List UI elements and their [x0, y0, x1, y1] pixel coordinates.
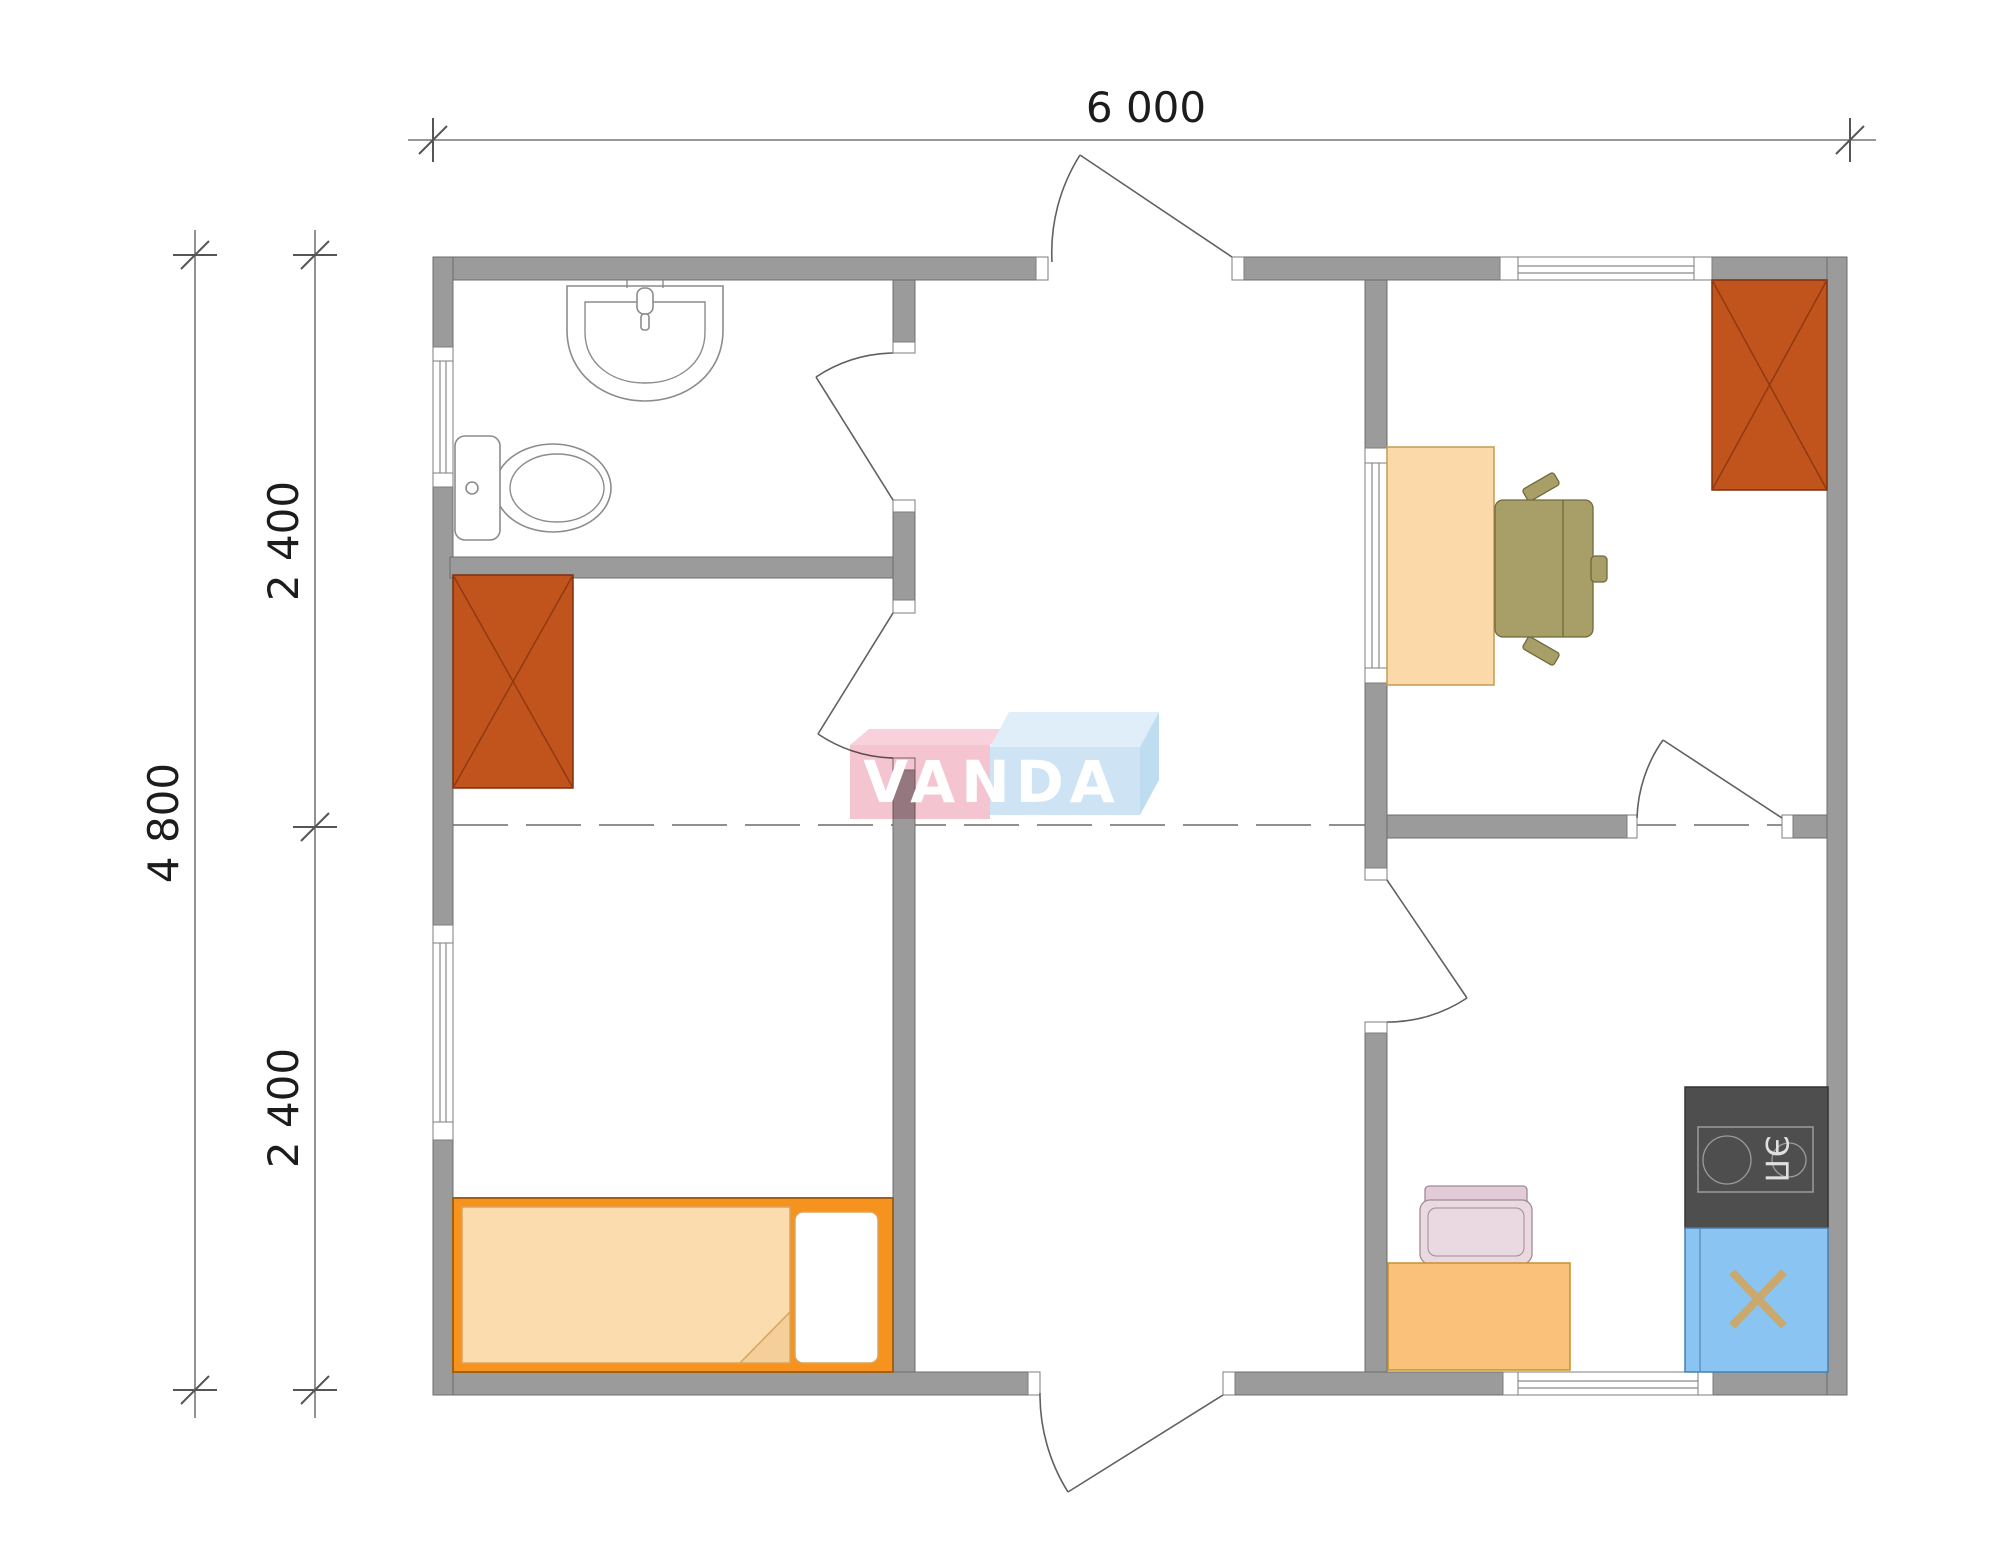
- wall-segment: [1365, 683, 1387, 868]
- wall-segment: [1827, 257, 1847, 1395]
- wardrobe-office: [1712, 280, 1827, 490]
- door-jamb: [1223, 1372, 1235, 1395]
- wall-segment: [433, 257, 453, 347]
- chair-armrest: [1522, 636, 1560, 666]
- dimension-label-lower-height: 2 400: [259, 1048, 308, 1168]
- door-jamb: [893, 500, 915, 512]
- wall-segment: [1387, 815, 1627, 838]
- faucet-spout: [641, 314, 649, 330]
- chair-seat: [1420, 1200, 1532, 1264]
- door-jamb: [1627, 815, 1637, 838]
- door-jamb: [1232, 257, 1244, 280]
- dimension-left-total: 4 800: [139, 230, 217, 1418]
- stove-body: [1685, 1087, 1828, 1228]
- kitchen-table: [1388, 1263, 1570, 1370]
- wall-segment: [1365, 280, 1387, 448]
- window-office-partition: [1365, 448, 1387, 683]
- door-jamb: [1365, 1022, 1387, 1033]
- window-west-bathroom: [433, 347, 453, 487]
- chair-seat: [1495, 500, 1593, 637]
- floor-plan-canvas: ЭП: [0, 0, 2000, 1563]
- wall-segment: [1235, 1372, 1503, 1395]
- chair-armrest: [1522, 472, 1560, 502]
- logo-blue-top-face: [990, 712, 1159, 747]
- desk-top: [1387, 447, 1494, 685]
- bed-pillow: [795, 1212, 878, 1363]
- door-jamb: [1028, 1372, 1040, 1395]
- faucet-icon: [637, 288, 653, 314]
- stove-label: ЭП: [1758, 1136, 1794, 1185]
- wall-segment: [1365, 1033, 1387, 1372]
- toilet-bowl: [495, 444, 611, 532]
- door-bathroom: [816, 353, 893, 500]
- bathroom-sink: [567, 280, 723, 401]
- chair-tab: [1591, 556, 1607, 582]
- wardrobe-bedroom: [453, 575, 573, 788]
- window-west-bedroom: [433, 925, 453, 1140]
- wall-segment: [893, 512, 915, 600]
- door-jamb: [893, 600, 915, 613]
- dimension-left-halves: 2 400 2 400: [259, 230, 337, 1418]
- bed: [453, 1198, 893, 1372]
- kitchen-sink: [1685, 1228, 1828, 1372]
- door-entry-north: [1052, 155, 1232, 262]
- logo-pink-top-face: [850, 729, 1009, 745]
- door-office: [1637, 740, 1782, 818]
- door-jamb: [893, 342, 915, 353]
- wall-segment: [893, 770, 915, 1372]
- dimension-label-total-height: 4 800: [139, 763, 188, 883]
- dimension-label-upper-height: 2 400: [259, 481, 308, 601]
- vanda-logo-text: VANDA: [863, 748, 1120, 816]
- door-entry-south: [1040, 1393, 1223, 1492]
- wall-segment: [433, 487, 453, 925]
- wall-segment: [433, 1140, 453, 1395]
- toilet: [455, 436, 611, 540]
- dimension-label-width: 6 000: [1086, 83, 1206, 132]
- window-south: [1503, 1372, 1713, 1395]
- floor-plan: ЭП: [0, 0, 2000, 1563]
- door-kitchen: [1387, 880, 1467, 1022]
- wall-segment: [433, 1372, 1028, 1395]
- kitchen-chair: [1420, 1186, 1532, 1264]
- door-jamb: [1782, 815, 1793, 838]
- vanda-watermark: VANDA: [850, 712, 1159, 819]
- dimension-top: 6 000: [408, 83, 1876, 162]
- table-top: [1388, 1263, 1570, 1370]
- door-jamb: [1036, 257, 1048, 280]
- door-jamb: [1365, 868, 1387, 880]
- window-north: [1500, 257, 1712, 280]
- wall-segment: [893, 280, 915, 342]
- flush-button-icon: [466, 482, 478, 494]
- wall-segment: [1244, 257, 1500, 280]
- office-chair: [1495, 472, 1607, 666]
- wall-segment: [1793, 815, 1827, 838]
- office-desk: [1387, 447, 1494, 685]
- stove: ЭП: [1685, 1087, 1828, 1228]
- bed-blanket: [462, 1207, 790, 1363]
- wall-segment: [433, 257, 1036, 280]
